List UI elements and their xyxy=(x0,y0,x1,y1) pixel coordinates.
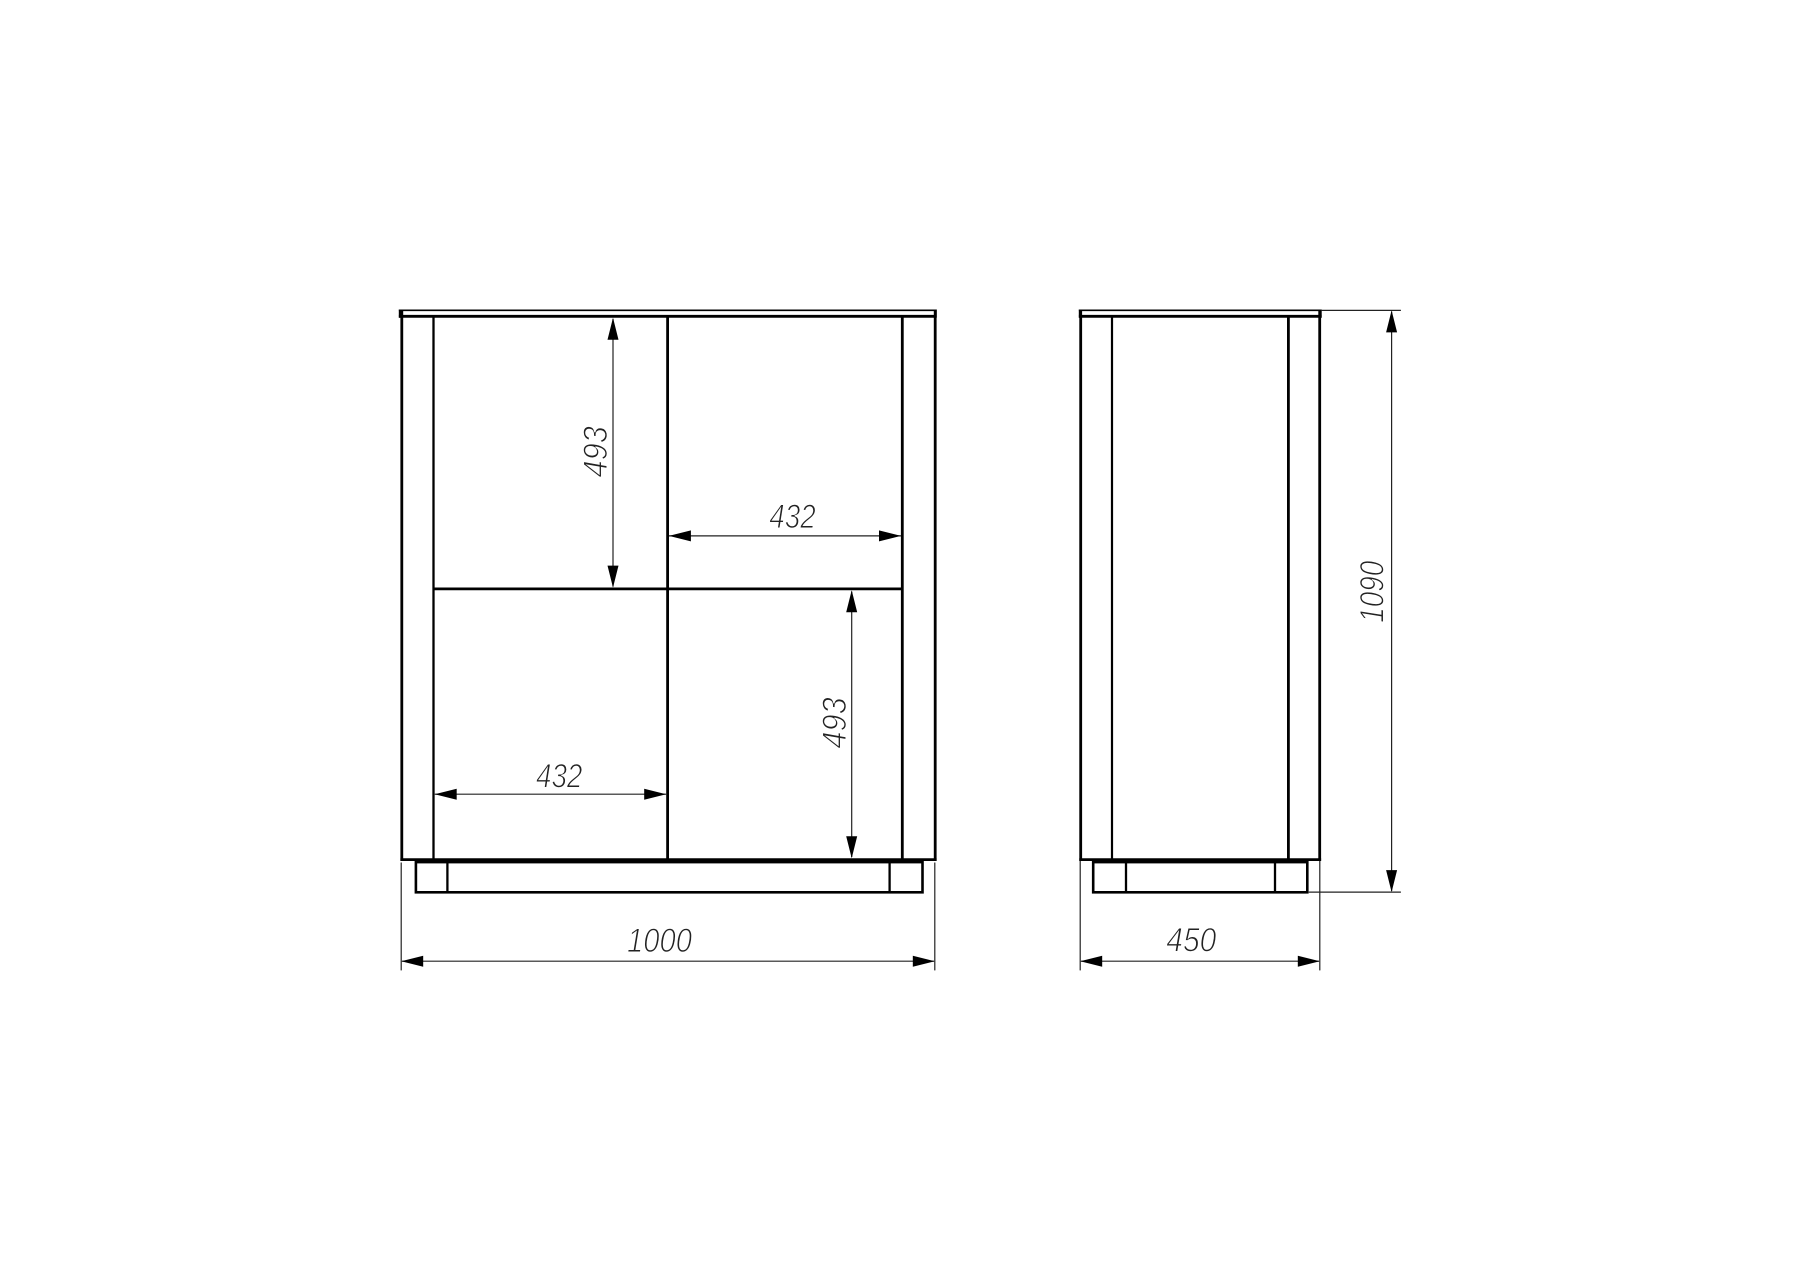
svg-text:432: 432 xyxy=(536,758,583,796)
svg-text:432: 432 xyxy=(769,498,816,536)
svg-text:493: 493 xyxy=(816,697,854,749)
svg-text:493: 493 xyxy=(577,426,615,478)
svg-text:1000: 1000 xyxy=(627,922,692,960)
svg-text:450: 450 xyxy=(1166,922,1216,960)
svg-text:1090: 1090 xyxy=(1354,561,1392,623)
